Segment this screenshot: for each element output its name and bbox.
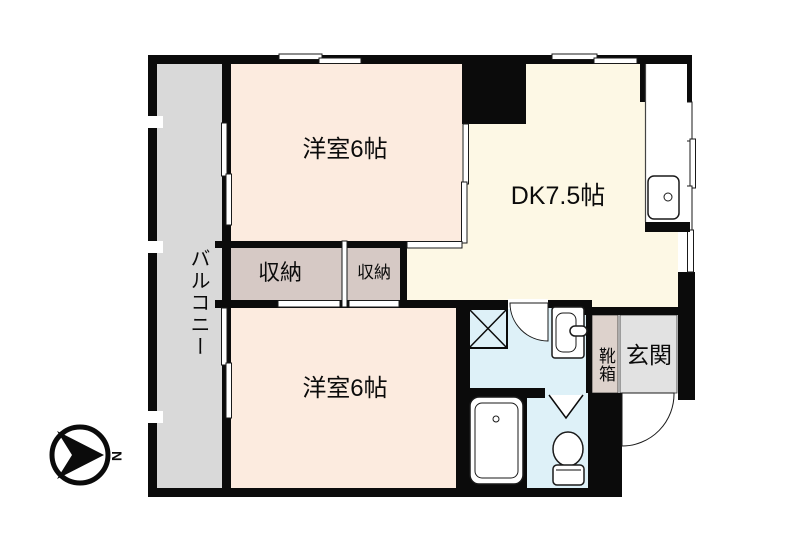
window-kitchen-right xyxy=(687,102,696,230)
closet-large-door xyxy=(278,301,340,308)
kitchen-sink xyxy=(648,176,679,219)
balcony-divider-notch xyxy=(144,116,163,128)
label-closet-large: 収納 xyxy=(226,260,334,285)
toilet-right-block xyxy=(588,393,622,495)
label-shoe-cabinet: 靴箱 xyxy=(593,336,615,394)
washing-machine-icon xyxy=(469,309,507,348)
label-entrance: 玄関 xyxy=(621,342,677,368)
closet-top-wall xyxy=(215,241,407,248)
label-dining-kitchen: DK7.5帖 xyxy=(468,182,648,211)
toilet xyxy=(553,432,584,485)
dining-kitchen-hall-strip xyxy=(400,243,470,308)
kitchen-counter xyxy=(645,64,690,232)
label-compass-north: N xyxy=(107,447,125,465)
balcony-divider-notch xyxy=(144,411,163,423)
label-balcony: バルコニー xyxy=(183,230,209,375)
compass-icon xyxy=(52,427,108,483)
washroom-right-wall xyxy=(586,300,592,393)
balcony-divider-notch xyxy=(144,241,163,253)
vanity-sink xyxy=(552,307,587,358)
window-right-lower xyxy=(688,230,694,272)
label-western-room-bottom: 洋室6帖 xyxy=(250,375,440,403)
entrance-door-arc xyxy=(622,393,674,446)
floor-plan: 洋室6帖 DK7.5帖 洋室6帖 収納 収納 玄関 バルコニー 靴箱 N xyxy=(0,0,800,541)
bathtub xyxy=(470,397,523,484)
kitchen-faucet-icon xyxy=(664,193,672,201)
right-wall xyxy=(678,272,695,400)
label-closet-small: 収納 xyxy=(341,263,407,283)
closet-small-door xyxy=(349,301,399,308)
center-pillar xyxy=(462,55,526,124)
label-western-room-top: 洋室6帖 xyxy=(250,136,440,164)
bottom-wall xyxy=(148,488,622,497)
